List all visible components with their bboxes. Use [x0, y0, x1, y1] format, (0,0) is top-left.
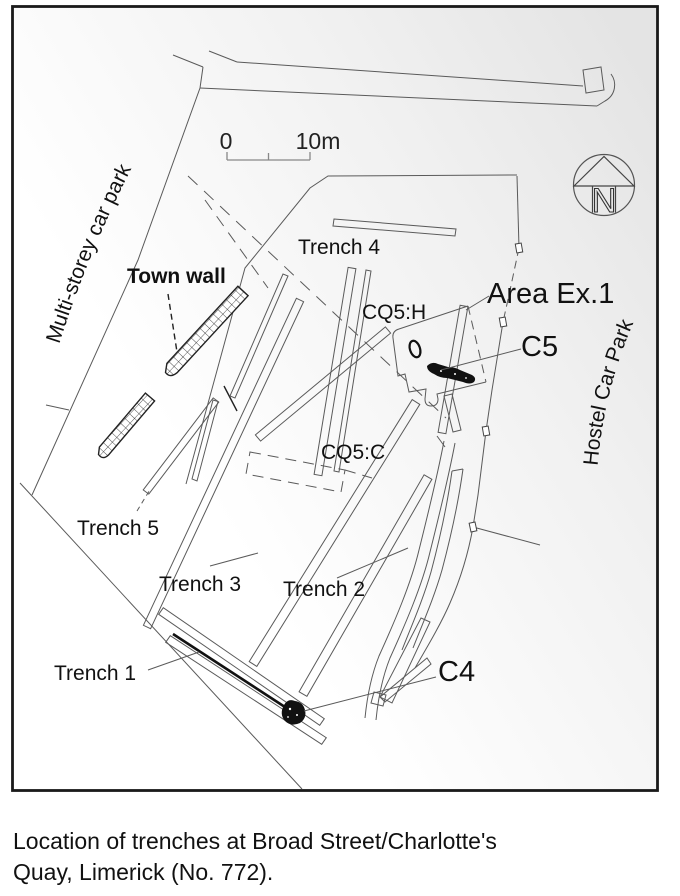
boundary-marker: [499, 317, 506, 327]
boundary-marker: [515, 243, 522, 253]
figure-caption: Location of trenches at Broad Street/Cha…: [13, 826, 653, 888]
cq5h-label: CQ5:H: [362, 301, 426, 324]
caption-line-1: Location of trenches at Broad Street/Cha…: [13, 826, 653, 857]
caption-line-2: Quay, Limerick (No. 772).: [13, 857, 653, 888]
c4-speckle: [289, 708, 291, 710]
trench-4-label: Trench 4: [298, 236, 380, 259]
trench-5-label: Trench 5: [77, 517, 159, 540]
c4-speckle: [287, 716, 289, 718]
scale-ten-label: 10m: [296, 128, 341, 154]
figure-page: 0 10m N Multi-storey car park Hostel Car…: [0, 0, 680, 896]
scale-zero-label: 0: [220, 128, 233, 154]
trench-3-label: Trench 3: [159, 573, 241, 596]
trench-2-label: Trench 2: [283, 578, 365, 601]
cq5c-label: CQ5:C: [321, 441, 385, 464]
area-ex1-label: Area Ex.1: [487, 278, 614, 310]
c5-speckle: [454, 373, 456, 375]
site-plan-map: 0 10m N Multi-storey car park Hostel Car…: [0, 0, 680, 896]
boundary-marker: [482, 426, 489, 436]
boundary-marker: [469, 522, 477, 532]
north-letter: N: [592, 182, 617, 220]
c5-label: C5: [521, 331, 558, 363]
trench-1-label: Trench 1: [54, 662, 136, 685]
c4-label: C4: [438, 656, 475, 688]
c5-speckle: [465, 377, 467, 379]
c4-speckle: [296, 714, 298, 716]
town-wall-label: Town wall: [127, 265, 226, 288]
